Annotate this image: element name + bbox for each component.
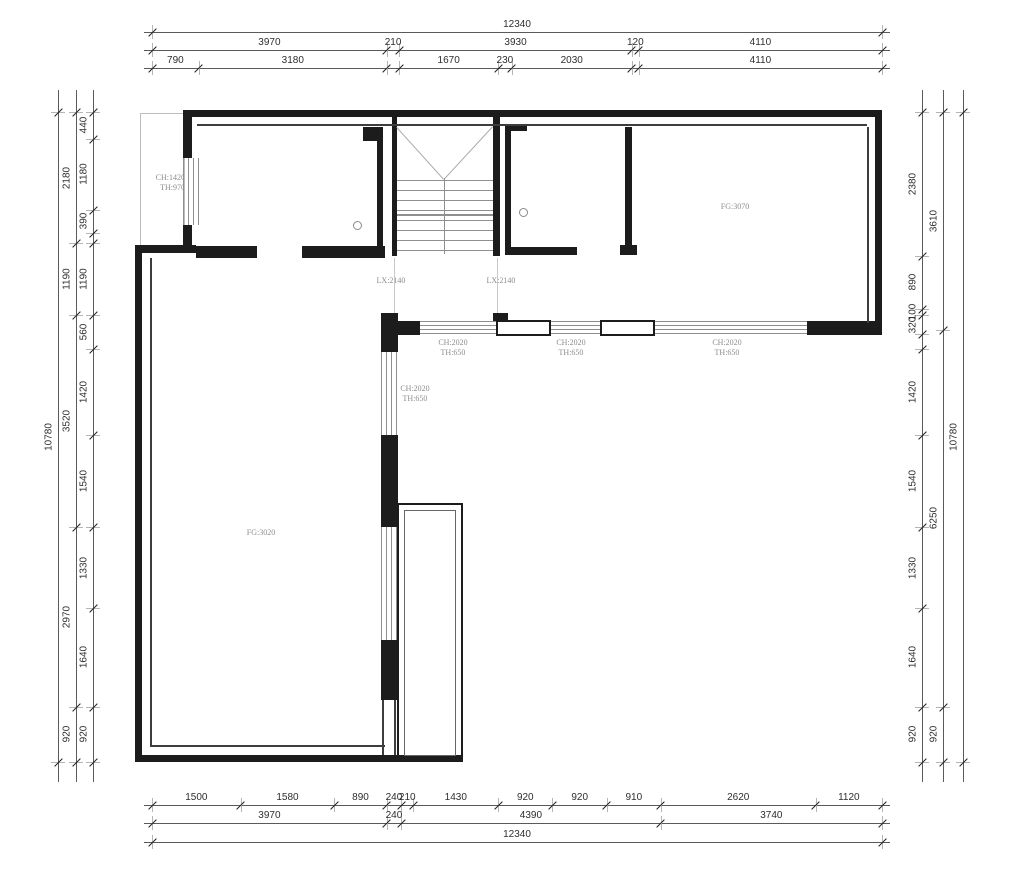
- window: [420, 325, 496, 326]
- wall: [183, 110, 882, 117]
- wall: [183, 117, 192, 158]
- wall-inner-face: [197, 124, 867, 126]
- wall: [135, 245, 142, 762]
- dimension-label: 4110: [725, 37, 795, 49]
- wall: [135, 245, 196, 253]
- bay-room-inner: [404, 510, 456, 756]
- dimension-label: 240: [359, 810, 429, 822]
- dimension-label: 3180: [258, 55, 328, 67]
- label-window-vertical: CH:2020 TH:650: [396, 384, 434, 404]
- label-line: TH:650: [434, 348, 472, 358]
- window: [420, 333, 496, 334]
- label-line: FG:3070: [712, 202, 758, 212]
- window: [655, 325, 807, 326]
- window: [551, 321, 600, 322]
- window: [655, 321, 807, 322]
- label-line: TH:650: [708, 348, 746, 358]
- stair-tread: [397, 180, 493, 181]
- wall: [363, 127, 383, 141]
- window: [655, 329, 807, 330]
- window: [551, 329, 600, 330]
- window: [381, 352, 382, 435]
- dimension-label: 230: [470, 55, 540, 67]
- dimension-line: [144, 50, 890, 51]
- wall: [625, 127, 632, 250]
- window: [198, 158, 199, 225]
- label-line: CH:2020: [396, 384, 434, 394]
- wall: [377, 127, 383, 258]
- stair-tread: [397, 250, 493, 251]
- wall: [392, 116, 397, 256]
- label-lx-left: LX:2140: [370, 276, 412, 286]
- dimension-label: 3930: [481, 37, 551, 49]
- wall: [807, 321, 882, 335]
- stair-tread: [397, 230, 493, 231]
- window: [420, 321, 496, 322]
- dimension-label: 790: [140, 55, 210, 67]
- label-line: LX:2140: [370, 276, 412, 286]
- label-line: FG:3020: [238, 528, 284, 538]
- window: [188, 158, 189, 225]
- wall: [875, 110, 882, 335]
- stair-centerline: [444, 178, 445, 254]
- opening-line: [497, 258, 498, 313]
- opening-line: [394, 258, 395, 313]
- dimension-label: 12340: [482, 829, 552, 841]
- dimension-label: 1430: [421, 792, 491, 804]
- dimension-label: 3740: [736, 810, 806, 822]
- wall: [381, 640, 398, 700]
- label-room-left: FG:3020: [238, 528, 284, 538]
- window: [655, 333, 807, 334]
- dimension-label: 4390: [496, 810, 566, 822]
- fixture-circle: [353, 221, 362, 230]
- dimension-label: 3970: [234, 810, 304, 822]
- dimension-label: 4110: [725, 55, 795, 67]
- window: [193, 158, 194, 225]
- dimension-label: 12340: [482, 19, 552, 31]
- dimension-line: [76, 90, 77, 782]
- wall: [620, 245, 637, 255]
- window: [551, 333, 600, 334]
- wall-pillar: [600, 320, 655, 336]
- label-line: TH:650: [396, 394, 434, 404]
- window: [396, 352, 397, 435]
- dimension-line: [943, 90, 944, 782]
- label-line: LX:2140: [480, 276, 522, 286]
- dimension-label: 1580: [252, 792, 322, 804]
- stair-break-line: [444, 126, 493, 179]
- window: [391, 352, 392, 435]
- annex-outline: [140, 113, 185, 250]
- fixture-circle: [519, 208, 528, 217]
- wall-inner-face: [150, 258, 152, 747]
- dimension-label: 1500: [161, 792, 231, 804]
- wall: [381, 435, 398, 527]
- wall: [505, 247, 577, 255]
- stair-break-line: [396, 127, 444, 180]
- wall-thin: [382, 700, 384, 755]
- label-window-a: CH:2020 TH:650: [434, 338, 472, 358]
- dimension-line: [144, 842, 890, 843]
- stair-tread: [397, 210, 493, 211]
- dimension-label: 2030: [537, 55, 607, 67]
- dimension-label: 910: [599, 792, 669, 804]
- stair-tread: [397, 220, 493, 221]
- wall-inner-face: [867, 127, 869, 323]
- dimension-line: [144, 32, 890, 33]
- window: [386, 527, 387, 640]
- wall: [196, 246, 257, 258]
- window: [391, 527, 392, 640]
- dimension-line: [963, 90, 964, 782]
- dimension-label: 1120: [814, 792, 884, 804]
- window: [183, 158, 184, 225]
- window: [551, 325, 600, 326]
- stair-tread: [397, 190, 493, 191]
- window: [420, 329, 496, 330]
- dimension-label: 3970: [234, 37, 304, 49]
- wall-inner-face: [152, 745, 385, 747]
- label-line: CH:2020: [434, 338, 472, 348]
- dimension-line: [144, 805, 890, 806]
- wall: [398, 321, 420, 335]
- wall-pillar: [496, 320, 551, 336]
- dimension-line: [144, 823, 890, 824]
- stair-tread: [397, 200, 493, 201]
- wall: [302, 246, 385, 258]
- dimension-label: 2620: [703, 792, 773, 804]
- wall: [493, 116, 500, 256]
- wall: [505, 125, 511, 255]
- label-line: TH:650: [552, 348, 590, 358]
- dimension-label: 120: [600, 37, 670, 49]
- window: [386, 352, 387, 435]
- dimension-label: 210: [358, 37, 428, 49]
- dimension-line: [58, 90, 59, 782]
- label-window-b: CH:2020 TH:650: [552, 338, 590, 358]
- floor-plan-canvas: CH:1420 TH:970 LX:2140 LX:2140 FG:3070 F…: [0, 0, 1031, 876]
- stair-tread: [397, 240, 493, 241]
- window: [381, 527, 382, 640]
- dimension-line: [144, 68, 890, 69]
- wall: [381, 313, 398, 352]
- label-line: CH:2020: [552, 338, 590, 348]
- label-lx-right: LX:2140: [480, 276, 522, 286]
- stair-tread: [397, 214, 493, 216]
- label-window-c: CH:2020 TH:650: [708, 338, 746, 358]
- wall-thin: [394, 700, 396, 755]
- label-line: CH:2020: [708, 338, 746, 348]
- label-room-right: FG:3070: [712, 202, 758, 212]
